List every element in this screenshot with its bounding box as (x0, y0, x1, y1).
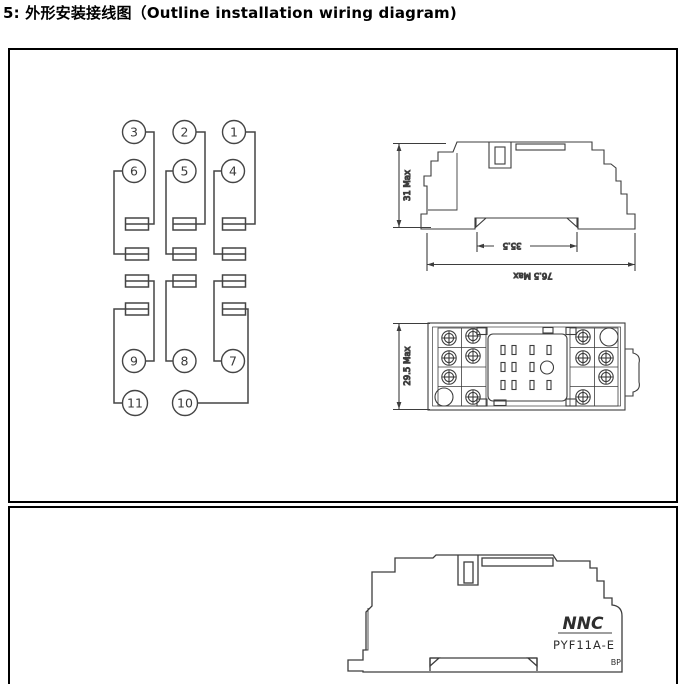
marking-label: BP (611, 658, 621, 667)
terminal-screws (442, 329, 613, 404)
side-release-clip (625, 349, 639, 396)
pin-label: 4 (229, 164, 237, 179)
mounting-hole (600, 328, 618, 346)
center-pin-hole (541, 361, 554, 374)
top-label-recess (516, 144, 565, 150)
body-outline (428, 323, 625, 410)
pin-label: 6 (130, 164, 138, 179)
rail-hooks (476, 218, 577, 227)
keying-notch (543, 328, 553, 334)
dim-label-height: 31 Max (403, 170, 413, 201)
product-clip (458, 555, 478, 585)
corner-tab (477, 399, 487, 406)
product-labels: NNC PYF11A-E BP (553, 614, 621, 667)
dimension-76-5max: 76.5 Max (427, 233, 635, 280)
terminal-blocks (438, 328, 618, 406)
dim-label-rail-width: 35.5 (503, 240, 522, 250)
document-page: 5: 外形安装接线图（Outline installation wiring d… (0, 0, 684, 684)
body-inner-line (433, 327, 621, 406)
product-top-recess (482, 558, 553, 566)
pin-label: 2 (181, 125, 189, 140)
socket-pin-area (477, 328, 576, 407)
brand-logo: NNC (563, 614, 604, 634)
line-art-svg: 3 2 1 6 5 4 9 8 7 11 10 (0, 0, 684, 684)
clip-slot (495, 147, 505, 164)
pin-label: 11 (127, 396, 143, 411)
top-view-drawing: 29.5 Max (393, 323, 639, 410)
corner-tab (566, 399, 576, 406)
pin-slots (501, 346, 551, 390)
dimension-29-5max: 29.5 Max (393, 324, 430, 410)
product-drawing: NNC PYF11A-E BP (348, 555, 622, 672)
product-rail-channel (430, 658, 537, 671)
side-view-drawing: 31 Max 35.5 76.5 Max (393, 142, 635, 280)
pin-label: 10 (177, 396, 193, 411)
dimension-35-5: 35.5 (477, 232, 577, 252)
model-label: PYF11A-E (553, 638, 615, 652)
corner-tab (566, 328, 576, 335)
pin-label: 8 (181, 354, 189, 369)
product-clip-slot (464, 562, 473, 583)
terminal-contacts (126, 218, 246, 315)
pin-label: 3 (130, 125, 138, 140)
pin-label: 1 (230, 125, 238, 140)
pin-label: 5 (181, 164, 189, 179)
dim-label-overall-width: 76.5 Max (513, 270, 552, 280)
dim-label-depth: 29.5 Max (403, 346, 413, 385)
socket-profile-outline (421, 142, 635, 229)
pin-label: 7 (229, 354, 237, 369)
wiring-schematic: 3 2 1 6 5 4 9 8 7 11 10 (114, 121, 255, 416)
pin-label: 9 (130, 354, 138, 369)
